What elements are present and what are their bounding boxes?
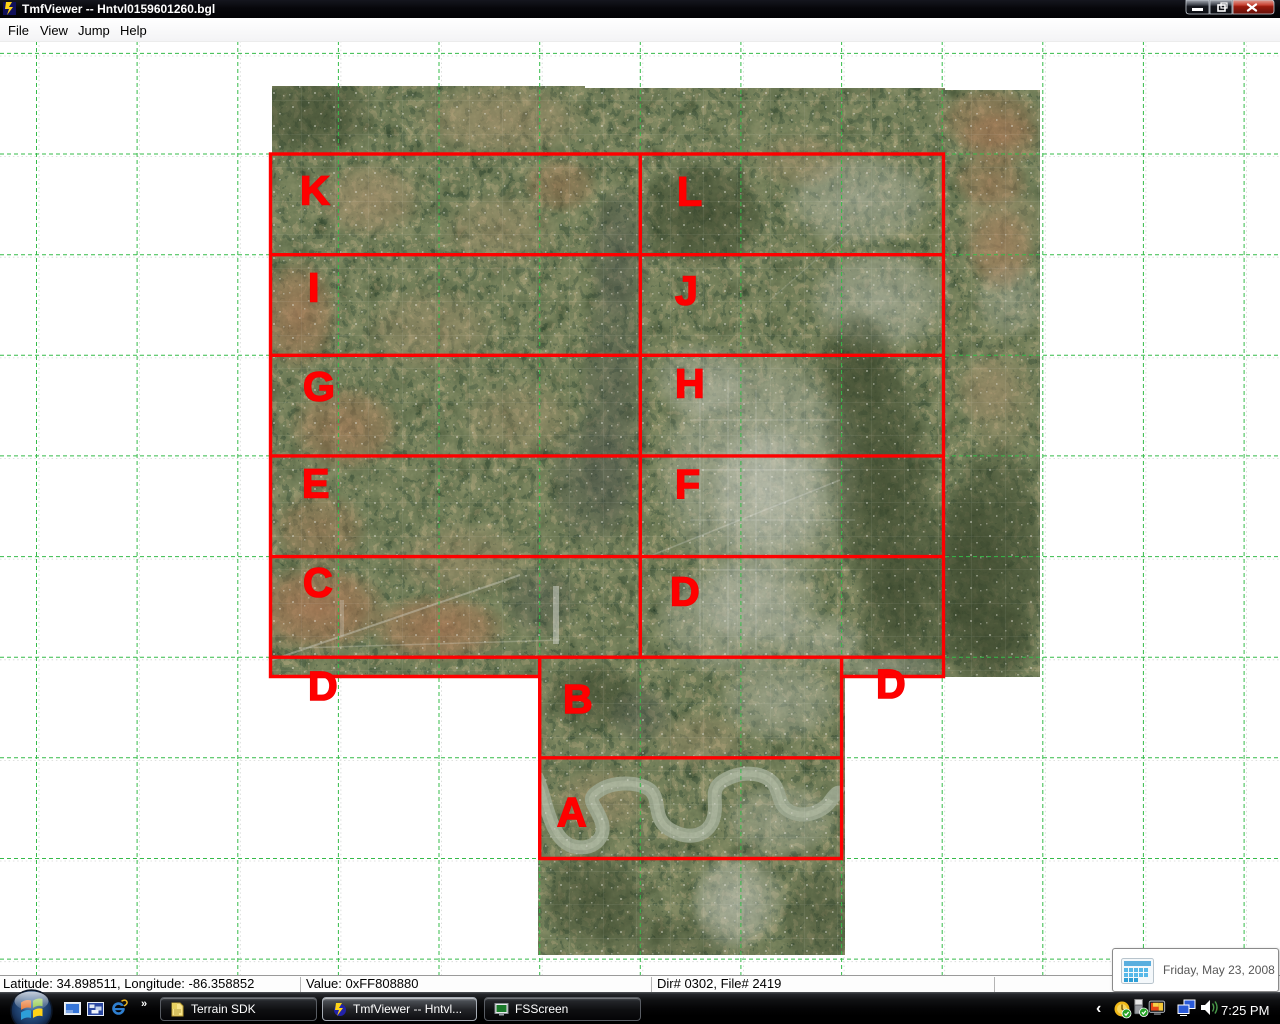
svg-text:J: J (675, 268, 698, 314)
svg-text:I: I (308, 265, 319, 311)
svg-text:E: E (302, 461, 329, 507)
svg-text:B: B (563, 676, 593, 722)
svg-text:C: C (303, 560, 333, 606)
svg-text:K: K (300, 168, 330, 214)
svg-text:F: F (675, 462, 700, 508)
svg-text:D: D (876, 661, 906, 707)
svg-text:L: L (677, 169, 702, 215)
svg-text:D: D (308, 663, 338, 709)
svg-text:D: D (670, 569, 700, 615)
svg-text:H: H (675, 361, 705, 407)
svg-text:G: G (303, 364, 335, 410)
svg-text:A: A (557, 789, 587, 835)
